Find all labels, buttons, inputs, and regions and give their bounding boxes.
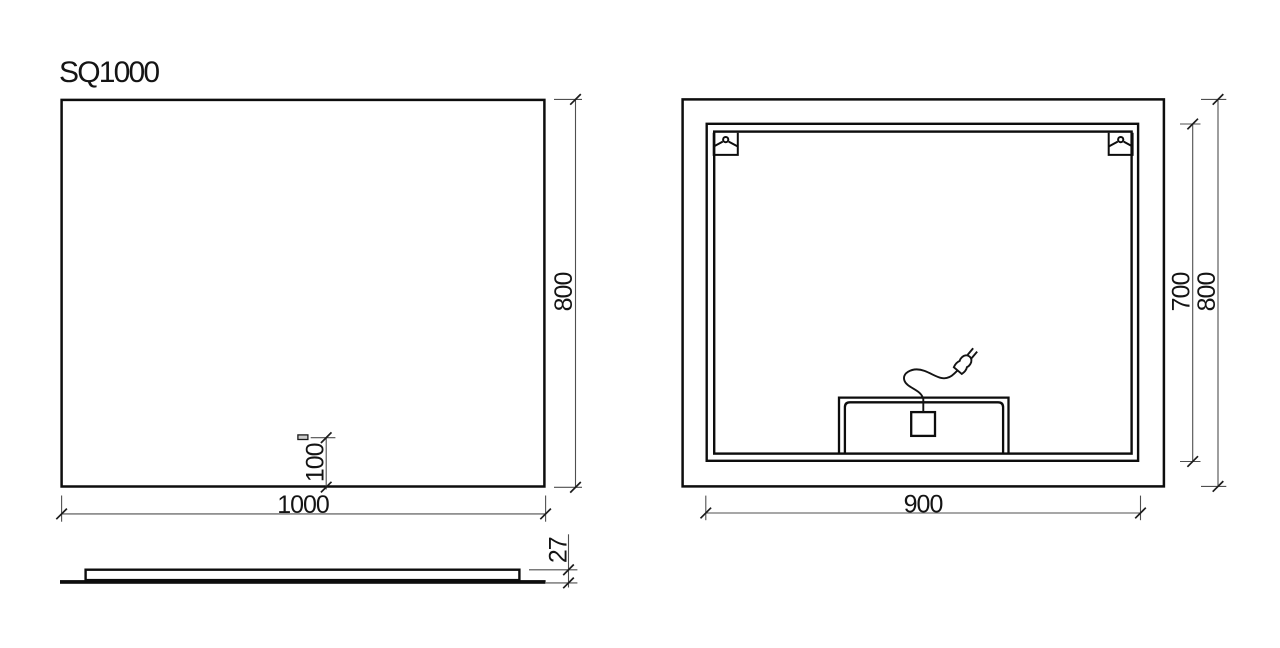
svg-text:700: 700 xyxy=(1168,273,1196,312)
svg-text:800: 800 xyxy=(550,273,578,312)
svg-text:900: 900 xyxy=(904,490,943,518)
svg-text:27: 27 xyxy=(545,537,573,563)
svg-text:SQ1000: SQ1000 xyxy=(59,56,159,89)
svg-text:1000: 1000 xyxy=(277,491,329,519)
svg-text:100: 100 xyxy=(302,443,330,482)
svg-text:800: 800 xyxy=(1193,273,1221,312)
